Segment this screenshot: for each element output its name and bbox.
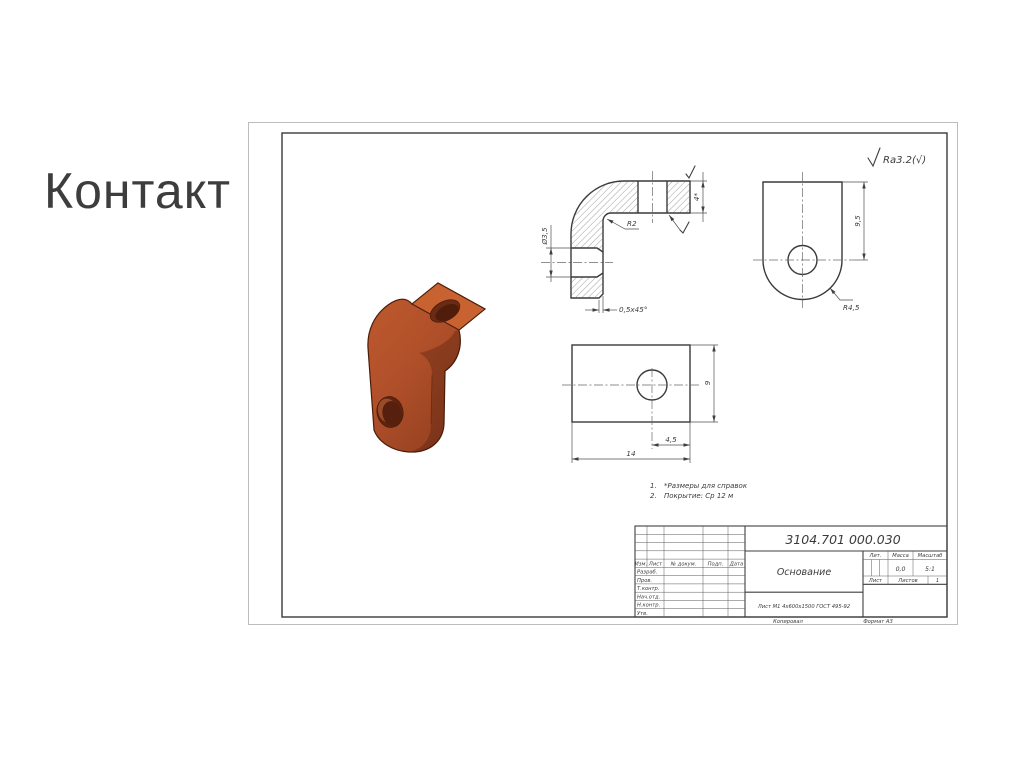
svg-text:Лист: Лист — [648, 562, 663, 568]
svg-text:R2: R2 — [627, 219, 637, 228]
svg-text:14: 14 — [626, 449, 636, 458]
svg-text:Листов: Листов — [897, 578, 917, 584]
svg-text:Ø3,5: Ø3,5 — [540, 227, 549, 246]
note-number: 2. — [650, 492, 657, 500]
svg-text:Лит.: Лит. — [869, 553, 882, 559]
svg-text:9,5: 9,5 — [853, 215, 862, 227]
svg-text:0,0: 0,0 — [896, 566, 906, 573]
note-text: *Размеры для справок — [664, 482, 748, 490]
svg-text:Утв.: Утв. — [637, 611, 648, 617]
svg-text:0,5x45°: 0,5x45° — [619, 305, 647, 314]
format-label: Формат А3 — [863, 619, 893, 625]
slide: Контакт — [0, 0, 1024, 767]
svg-text:4*: 4* — [692, 193, 701, 202]
drawing-sheet: Ø3,5 R2 0,5x45° — [248, 122, 958, 625]
svg-text:Изм.: Изм. — [635, 562, 647, 568]
svg-text:4,5: 4,5 — [665, 435, 677, 444]
part-name: Основание — [777, 567, 832, 578]
svg-text:5:1: 5:1 — [925, 566, 935, 573]
hatch-leg-end — [667, 181, 690, 213]
svg-text:Н.контр.: Н.контр. — [637, 603, 660, 609]
svg-text:Масса: Масса — [892, 553, 909, 559]
svg-text:Лист: Лист — [868, 578, 883, 584]
svg-text:Т.контр.: Т.контр. — [637, 586, 659, 592]
svg-text:Нач.отд.: Нач.отд. — [637, 594, 660, 600]
svg-text:Масштаб: Масштаб — [918, 553, 943, 559]
slide-title: Контакт — [44, 162, 231, 220]
svg-text:1: 1 — [936, 578, 939, 584]
svg-text:9: 9 — [703, 380, 712, 385]
svg-text:R4,5: R4,5 — [843, 303, 860, 312]
note-text: Покрытие: Ср 12 м — [664, 492, 734, 500]
surface-finish-text: Ra3.2(√) — [883, 155, 926, 166]
svg-text:Пров.: Пров. — [637, 578, 652, 584]
copied-label: Копировал — [773, 619, 803, 625]
note-number: 1. — [650, 482, 657, 490]
designation: 3104.701 000.030 — [785, 532, 900, 547]
svg-text:Подп.: Подп. — [708, 562, 724, 568]
material: Лист М1 4х600х1500 ГОСТ 495-92 — [757, 604, 850, 610]
svg-text:Дата: Дата — [729, 562, 743, 568]
svg-text:Разраб.: Разраб. — [637, 570, 657, 576]
svg-text:№ докум.: № докум. — [670, 562, 697, 568]
